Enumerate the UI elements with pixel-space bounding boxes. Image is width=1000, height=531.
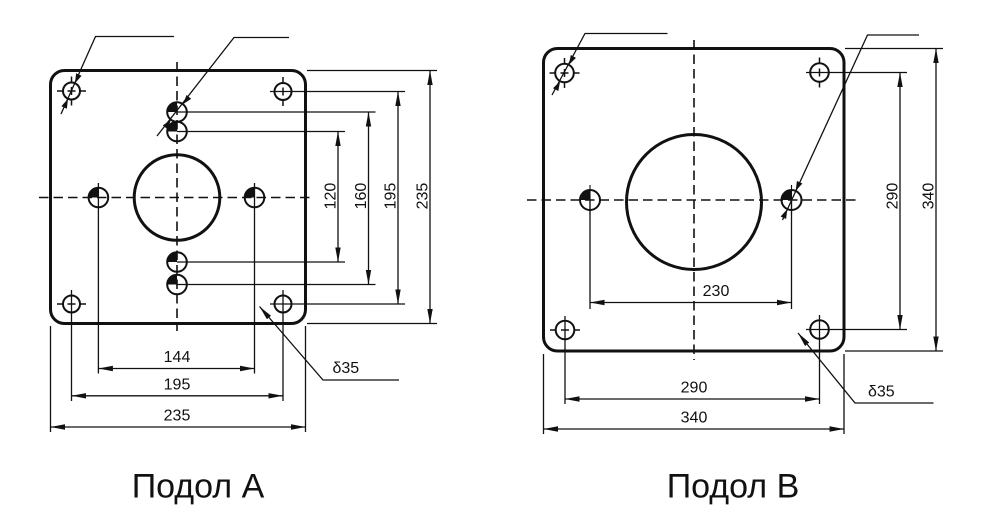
svg-text:235: 235: [415, 183, 432, 210]
svg-text:Подол А: Подол А: [132, 468, 265, 506]
svg-text:δ35: δ35: [868, 384, 895, 401]
svg-text:195: 195: [383, 183, 400, 210]
svg-text:290: 290: [885, 183, 902, 210]
svg-text:340: 340: [681, 410, 708, 427]
svg-text:120: 120: [323, 183, 340, 210]
svg-text:235: 235: [164, 408, 191, 425]
svg-text:340: 340: [921, 183, 938, 210]
svg-text:160: 160: [353, 183, 370, 210]
svg-text:195: 195: [164, 376, 191, 393]
svg-text:144: 144: [164, 349, 191, 366]
svg-text:230: 230: [703, 283, 730, 300]
svg-text:290: 290: [681, 380, 708, 397]
svg-text:Подол В: Подол В: [667, 468, 800, 506]
svg-text:δ35: δ35: [333, 360, 360, 377]
